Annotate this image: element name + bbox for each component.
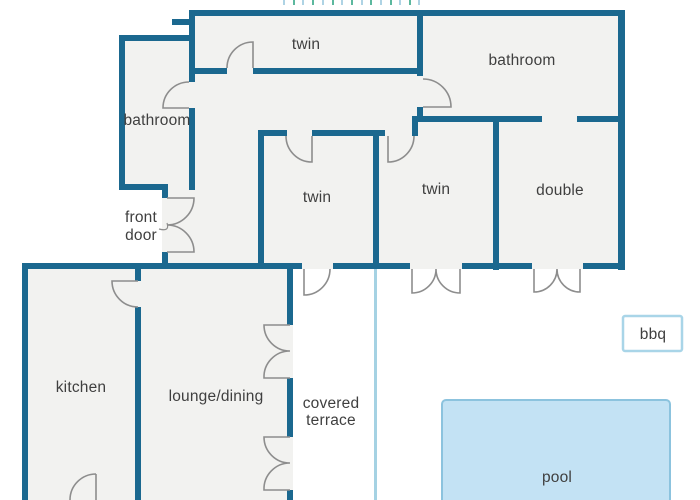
wall-segment — [172, 19, 190, 25]
wall-segment — [162, 252, 168, 269]
wall-segment — [412, 116, 418, 136]
wall-segment — [577, 116, 625, 122]
label-twin-right: twin — [422, 181, 450, 198]
wall-segment — [135, 269, 141, 281]
label-bathroom-top: bathroom — [488, 52, 555, 69]
room-fill-lounge — [135, 263, 293, 500]
label-twin-top: twin — [292, 36, 320, 53]
wall-segment — [253, 68, 423, 74]
wall-segment — [258, 130, 264, 269]
wall-segment — [618, 10, 625, 270]
wall-segment — [119, 184, 168, 190]
wall-segment — [493, 116, 499, 270]
wall-segment — [22, 263, 162, 269]
floor-plan-canvas: twin bathroom bathroom front door twin t… — [0, 0, 700, 500]
wall-segment — [135, 307, 141, 500]
floor-plan-svg: twin bathroom bathroom front door twin t… — [0, 0, 700, 500]
wall-segment — [287, 378, 293, 437]
label-twin-mid: twin — [303, 189, 331, 206]
wall-segment — [168, 263, 302, 269]
wall-segment — [189, 10, 195, 82]
wall-segment — [417, 10, 423, 76]
roof-tick-marks — [283, 0, 420, 5]
door-swing-double-terrace — [534, 269, 580, 292]
label-front-door-1: front — [125, 209, 158, 226]
door-swing-twin-right-terrace — [412, 269, 460, 293]
label-covered-terrace-1: covered — [303, 395, 360, 412]
label-pool: pool — [542, 469, 572, 486]
label-bbq: bbq — [640, 326, 666, 343]
door-swing-twin-mid-terrace — [304, 269, 330, 295]
wall-segment — [189, 10, 625, 16]
wall-segment — [195, 68, 227, 74]
wall-segment — [22, 263, 28, 500]
label-covered-terrace-2: terrace — [306, 412, 356, 429]
wall-segment — [119, 35, 195, 41]
wall-segment — [162, 184, 168, 198]
wall-segment — [373, 130, 379, 269]
wall-segment — [287, 263, 293, 325]
wall-segment — [417, 116, 542, 122]
label-front-door-2: door — [125, 227, 157, 244]
wall-segment — [287, 490, 293, 500]
terrace-boundary-line — [374, 269, 377, 500]
label-double: double — [536, 182, 584, 199]
label-kitchen: kitchen — [56, 379, 107, 396]
label-lounge-dining: lounge/dining — [169, 388, 264, 405]
label-bathroom-left: bathroom — [123, 112, 190, 129]
wall-segment — [333, 263, 410, 269]
